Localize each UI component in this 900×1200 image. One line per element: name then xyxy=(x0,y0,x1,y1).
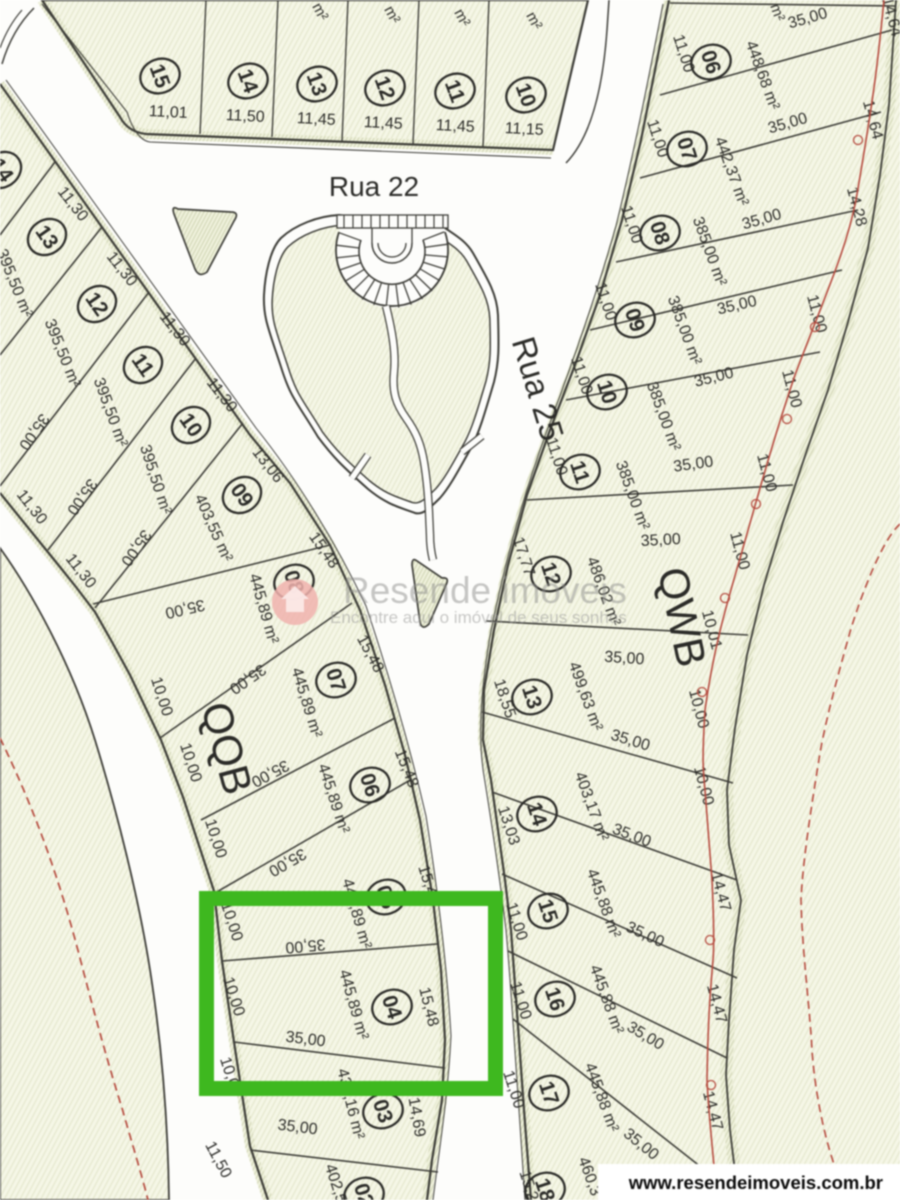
svg-text:11,50: 11,50 xyxy=(225,107,265,126)
svg-text:Rua 22: Rua 22 xyxy=(329,171,419,202)
svg-text:Encontre aqui o imóvel de seus: Encontre aqui o imóvel de seus sonhos xyxy=(330,608,627,627)
svg-text:11,15: 11,15 xyxy=(504,120,544,139)
svg-text:35,00: 35,00 xyxy=(640,531,681,550)
svg-text:11,45: 11,45 xyxy=(363,114,403,133)
svg-text:11,01: 11,01 xyxy=(148,103,188,122)
svg-text:Resende imóveis: Resende imóveis xyxy=(343,570,627,611)
svg-text:35,00: 35,00 xyxy=(285,935,326,955)
svg-text:35,00: 35,00 xyxy=(604,649,645,669)
svg-text:www.resendeimoveis.com.br: www.resendeimoveis.com.br xyxy=(628,1172,883,1193)
svg-text:11,45: 11,45 xyxy=(435,117,475,136)
svg-text:11,45: 11,45 xyxy=(296,110,336,129)
